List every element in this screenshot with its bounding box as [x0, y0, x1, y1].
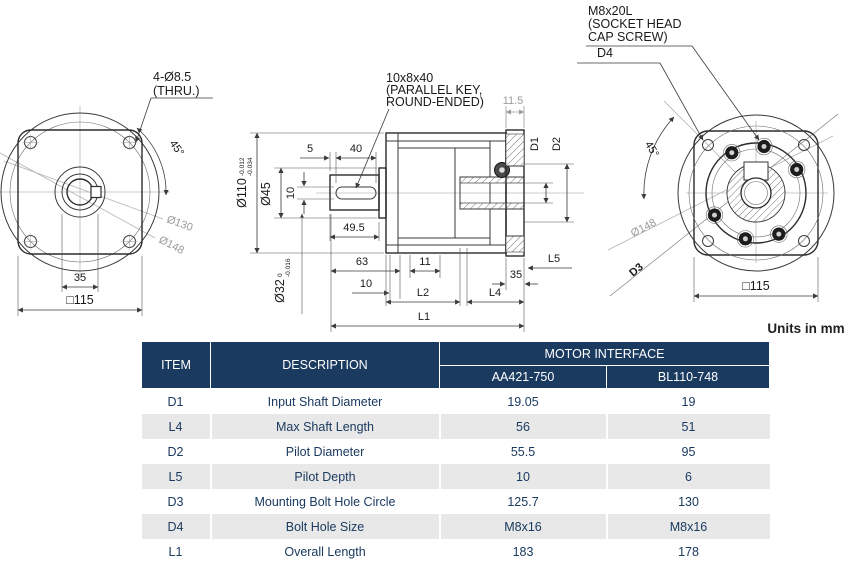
section-5-label: 5 [307, 143, 313, 155]
svg-text:-0.034: -0.034 [247, 157, 254, 176]
rear-square115-label: □115 [742, 279, 770, 293]
svg-text:-0.016: -0.016 [285, 258, 292, 277]
output-shaft [330, 175, 379, 210]
table-row: L4 Max Shaft Length 56 51 [142, 414, 770, 439]
cell-aa421-750: 10 [440, 464, 607, 489]
section-d110-label: Ø110 -0.012 -0.034 [235, 157, 254, 208]
cell-item: L5 [142, 464, 211, 489]
rear-keyway [744, 162, 768, 180]
section-10key-label: 10 [285, 187, 297, 199]
spec-table: ITEM DESCRIPTION MOTOR INTERFACE AA421-7… [141, 341, 770, 564]
cell-item: D4 [142, 514, 211, 539]
section-10-label: 10 [360, 278, 372, 290]
svg-text:Ø110: Ø110 [235, 178, 249, 208]
front-45deg-label: 45° [167, 138, 186, 159]
cell-aa421-750: M8x16 [440, 514, 607, 539]
cell-description: Max Shaft Length [211, 414, 440, 439]
section-view: D1 D2 11.5 10x8x40 (PARALLEL KEY, ROUND-… [235, 71, 584, 332]
front-d148-label: Ø148 [157, 234, 186, 257]
cell-bl110-748: 178 [607, 539, 770, 564]
section-L4-label: L4 [489, 287, 501, 299]
svg-text:Ø32: Ø32 [273, 279, 287, 303]
cell-bl110-748: M8x16 [607, 514, 770, 539]
cell-description: Input Shaft Diameter [211, 389, 440, 415]
section-L1-label: L1 [418, 311, 430, 323]
section-D2-label: D2 [551, 137, 563, 151]
cell-item: L4 [142, 414, 211, 439]
cell-bl110-748: 130 [607, 489, 770, 514]
svg-text:0: 0 [277, 273, 284, 277]
section-63-label: 63 [356, 256, 368, 268]
cell-item: L1 [142, 539, 211, 564]
cell-description: Pilot Diameter [211, 439, 440, 464]
section-11-label: 11 [419, 256, 430, 268]
section-L2-label: L2 [417, 287, 429, 299]
front-35-label: 35 [74, 272, 86, 284]
section-d45-label: Ø45 [259, 182, 273, 206]
section-d32-label: Ø32 0 -0.016 [273, 258, 292, 303]
table-row: L5 Pilot Depth 10 6 [142, 464, 770, 489]
table-row: D3 Mounting Bolt Hole Circle 125.7 130 [142, 489, 770, 514]
cell-aa421-750: 19.05 [440, 389, 607, 415]
section-screw-center [499, 167, 505, 173]
section-49_5-label: 49.5 [343, 222, 364, 234]
screw-note-line1: M8x20L [588, 4, 633, 18]
header-col-aa421-750: AA421-750 [440, 366, 607, 389]
input-bore-wall-bottom [460, 203, 524, 209]
rear-d148-label: Ø148 [629, 217, 658, 240]
gearbox-datasheet: { "units_note": "Units in mm", "front_vi… [0, 0, 850, 559]
cell-description: Mounting Bolt Hole Circle [211, 489, 440, 514]
cell-item: D3 [142, 489, 211, 514]
section-L5-label: L5 [548, 253, 560, 265]
units-note: Units in mm [767, 321, 844, 336]
section-11_5-label: 11.5 [503, 95, 524, 107]
D4-label: D4 [597, 46, 613, 60]
header-col-bl110-748: BL110-748 [607, 366, 770, 389]
cell-description: Pilot Depth [211, 464, 440, 489]
input-bore-wall-top [460, 177, 524, 183]
cell-bl110-748: 19 [607, 389, 770, 415]
cell-description: Overall Length [211, 539, 440, 564]
rear-D3-label: D3 [627, 261, 645, 279]
rear-45deg-label: 45° [642, 139, 661, 159]
section-35-label: 35 [510, 269, 522, 281]
header-description: DESCRIPTION [211, 342, 440, 389]
screw-note-line3: CAP SCREW) [588, 30, 668, 44]
table-row: D4 Bolt Hole Size M8x16 M8x16 [142, 514, 770, 539]
table-row: D2 Pilot Diameter 55.5 95 [142, 439, 770, 464]
front-boltholes-note-line1: 4-Ø8.5 [153, 70, 191, 84]
rear-bore [741, 178, 771, 208]
cell-bl110-748: 6 [607, 464, 770, 489]
cell-aa421-750: 56 [440, 414, 607, 439]
rear-view: 45° Ø148 D3 □115 M8x20L (SOCKET HEAD CAP… [577, 4, 838, 302]
front-square115-label: □115 [66, 293, 94, 307]
header-item: ITEM [142, 342, 211, 389]
cell-aa421-750: 125.7 [440, 489, 607, 514]
keyway [91, 187, 101, 198]
cell-item: D1 [142, 389, 211, 415]
cell-item: D2 [142, 439, 211, 464]
table-row: D1 Input Shaft Diameter 19.05 19 [142, 389, 770, 415]
front-boltholes-note-line2: (THRU.) [153, 84, 200, 98]
section-40-label: 40 [350, 143, 362, 155]
technical-drawing: 45° Ø130 Ø148 35 □115 4-Ø8.5 (THRU.) [0, 0, 850, 340]
key-note-line3: ROUND-ENDED) [386, 95, 484, 109]
section-D1-label: D1 [529, 137, 541, 151]
table-row: L1 Overall Length 183 178 [142, 539, 770, 564]
header-motor-interface: MOTOR INTERFACE [440, 342, 770, 366]
cell-aa421-750: 183 [440, 539, 607, 564]
svg-text:-0.012: -0.012 [239, 157, 246, 176]
cell-bl110-748: 51 [607, 414, 770, 439]
front-view: 45° Ø130 Ø148 35 □115 4-Ø8.5 (THRU.) [0, 70, 213, 316]
screw-note-line2: (SOCKET HEAD [588, 17, 682, 31]
cell-bl110-748: 95 [607, 439, 770, 464]
front-d130-label: Ø130 [165, 214, 194, 234]
cell-description: Bolt Hole Size [211, 514, 440, 539]
cell-aa421-750: 55.5 [440, 439, 607, 464]
